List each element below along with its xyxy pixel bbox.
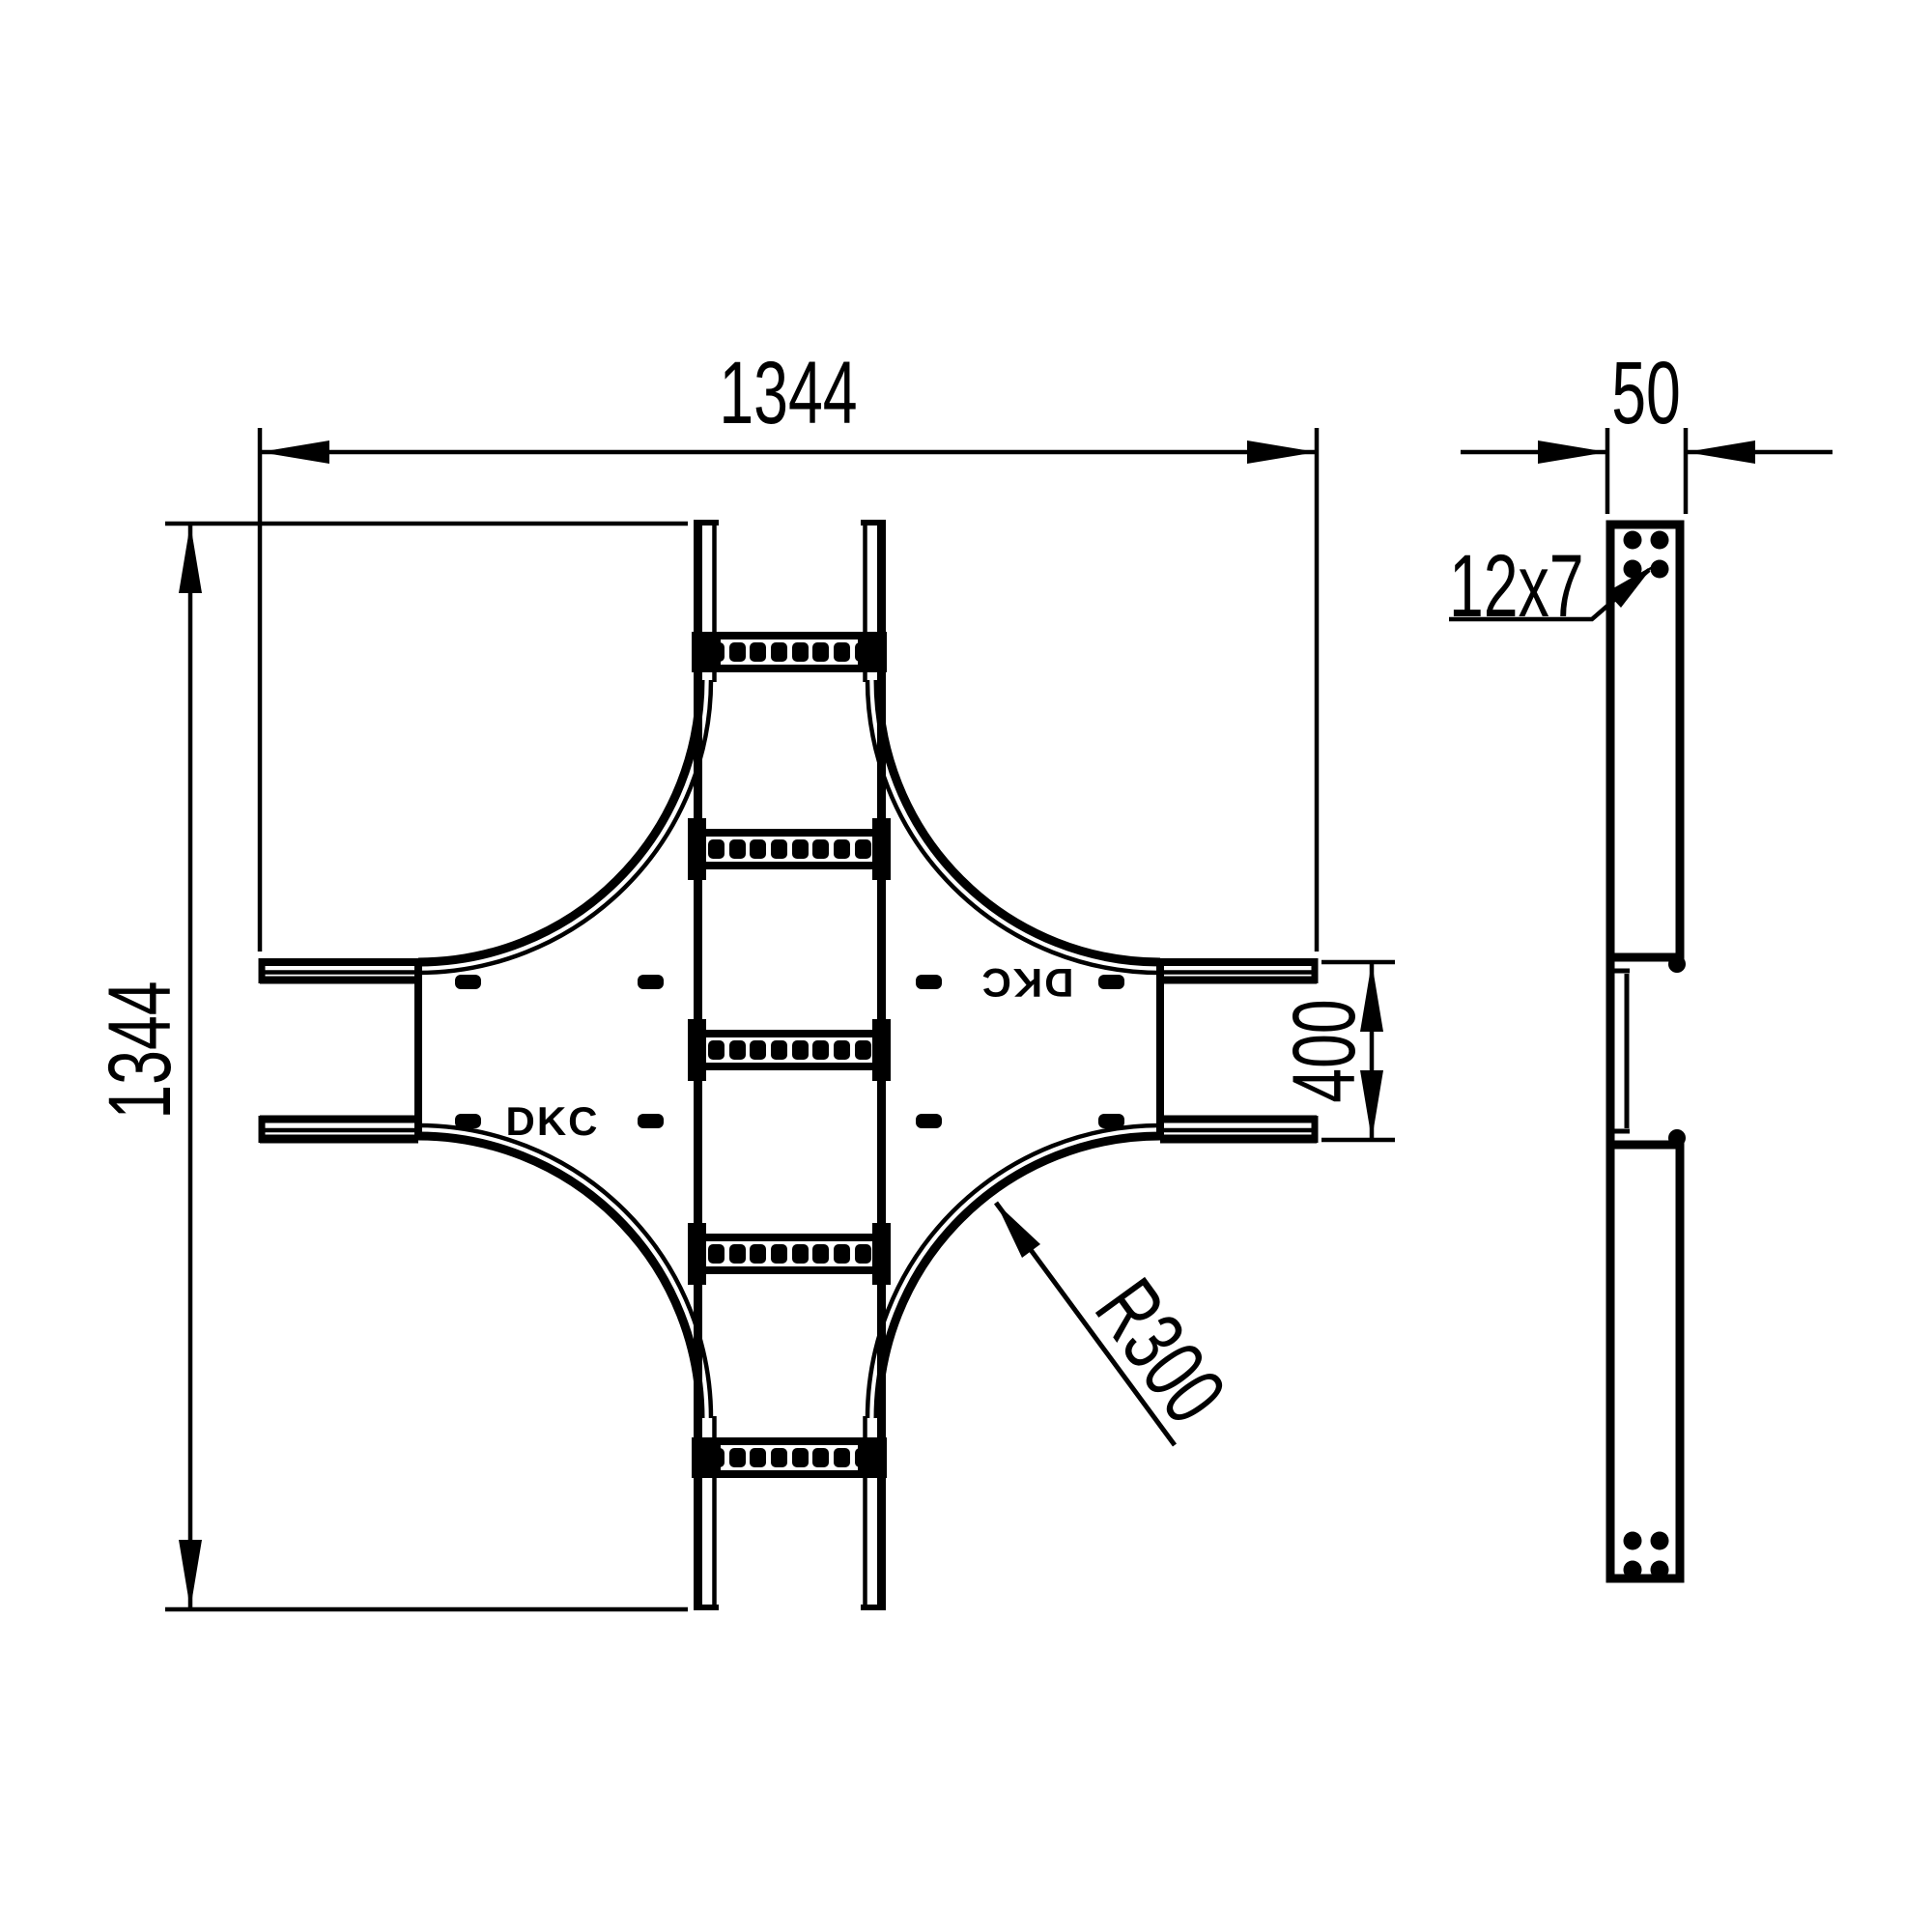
deck-slot bbox=[455, 1114, 481, 1128]
arc-top-right-outer bbox=[878, 680, 1160, 962]
arc-top-left-outer bbox=[418, 680, 700, 962]
arrowhead-right bbox=[1247, 440, 1317, 464]
deck-slot bbox=[916, 975, 942, 989]
dim-profile-height-value: 50 bbox=[1611, 343, 1681, 442]
corner-arcs bbox=[418, 680, 1160, 1418]
hole bbox=[1651, 1561, 1669, 1579]
flange-curl-upper bbox=[1668, 955, 1686, 973]
arc-bottom-left-inner bbox=[418, 1125, 711, 1418]
drawing-canvas: DKC DKC 1344 1344 400 bbox=[0, 0, 1932, 1932]
arrowhead-left bbox=[260, 440, 329, 464]
arrowhead-down bbox=[179, 1540, 202, 1609]
arc-bottom-right-inner bbox=[867, 1125, 1160, 1418]
hole bbox=[1651, 531, 1669, 550]
dim-overall-height-value: 1344 bbox=[90, 980, 189, 1119]
flange-curl-lower bbox=[1668, 1129, 1686, 1147]
hole bbox=[1624, 1561, 1642, 1579]
arrowhead-radius bbox=[996, 1203, 1040, 1258]
lower-rail-body bbox=[1610, 1145, 1680, 1578]
rung bbox=[688, 1223, 891, 1285]
dim-branch-width-value: 400 bbox=[1274, 999, 1374, 1102]
arc-bottom-left-outer bbox=[418, 1136, 700, 1418]
plan-view: DKC DKC 1344 1344 400 bbox=[90, 343, 1395, 1609]
deck-slot bbox=[1098, 975, 1124, 989]
rung bbox=[692, 632, 887, 672]
rung bbox=[692, 1437, 887, 1478]
dkc-logo: DKC bbox=[506, 1098, 600, 1144]
deck-slot bbox=[638, 975, 664, 989]
extension-line bbox=[165, 524, 688, 1609]
dim-overall-width bbox=[260, 428, 1317, 952]
mounting-holes-bottom bbox=[1624, 1532, 1669, 1579]
rungs bbox=[688, 632, 891, 1478]
extension-line bbox=[260, 428, 1317, 952]
horizontal-rails bbox=[260, 958, 1317, 1143]
hole bbox=[1651, 560, 1669, 579]
arrowhead-up bbox=[179, 524, 202, 593]
dim-overall-height bbox=[165, 524, 688, 1609]
dim-slot-size-value: 12x7 bbox=[1449, 536, 1584, 636]
technical-drawing: DKC DKC 1344 1344 400 bbox=[0, 0, 1932, 1932]
hole bbox=[1624, 531, 1642, 550]
deck-slot bbox=[916, 1114, 942, 1128]
deck-slot bbox=[1098, 1114, 1124, 1128]
arc-top-right-inner bbox=[867, 680, 1160, 973]
arc-top-left-inner bbox=[418, 680, 711, 973]
rung bbox=[688, 1019, 891, 1081]
dim-corner-radius-value: R300 bbox=[1077, 1262, 1245, 1440]
side-view: 50 12x7 bbox=[1449, 343, 1833, 1579]
dkc-logo-mirrored: DKC bbox=[980, 960, 1074, 1006]
arrowhead-right bbox=[1538, 440, 1607, 464]
hole bbox=[1651, 1532, 1669, 1550]
side-profile bbox=[1606, 525, 1686, 1578]
dim-overall-width-value: 1344 bbox=[719, 343, 857, 442]
hole bbox=[1624, 1532, 1642, 1550]
rung bbox=[688, 818, 891, 880]
arrowhead-left bbox=[1686, 440, 1755, 464]
deck-slot bbox=[455, 975, 481, 989]
deck-slot bbox=[638, 1114, 664, 1128]
